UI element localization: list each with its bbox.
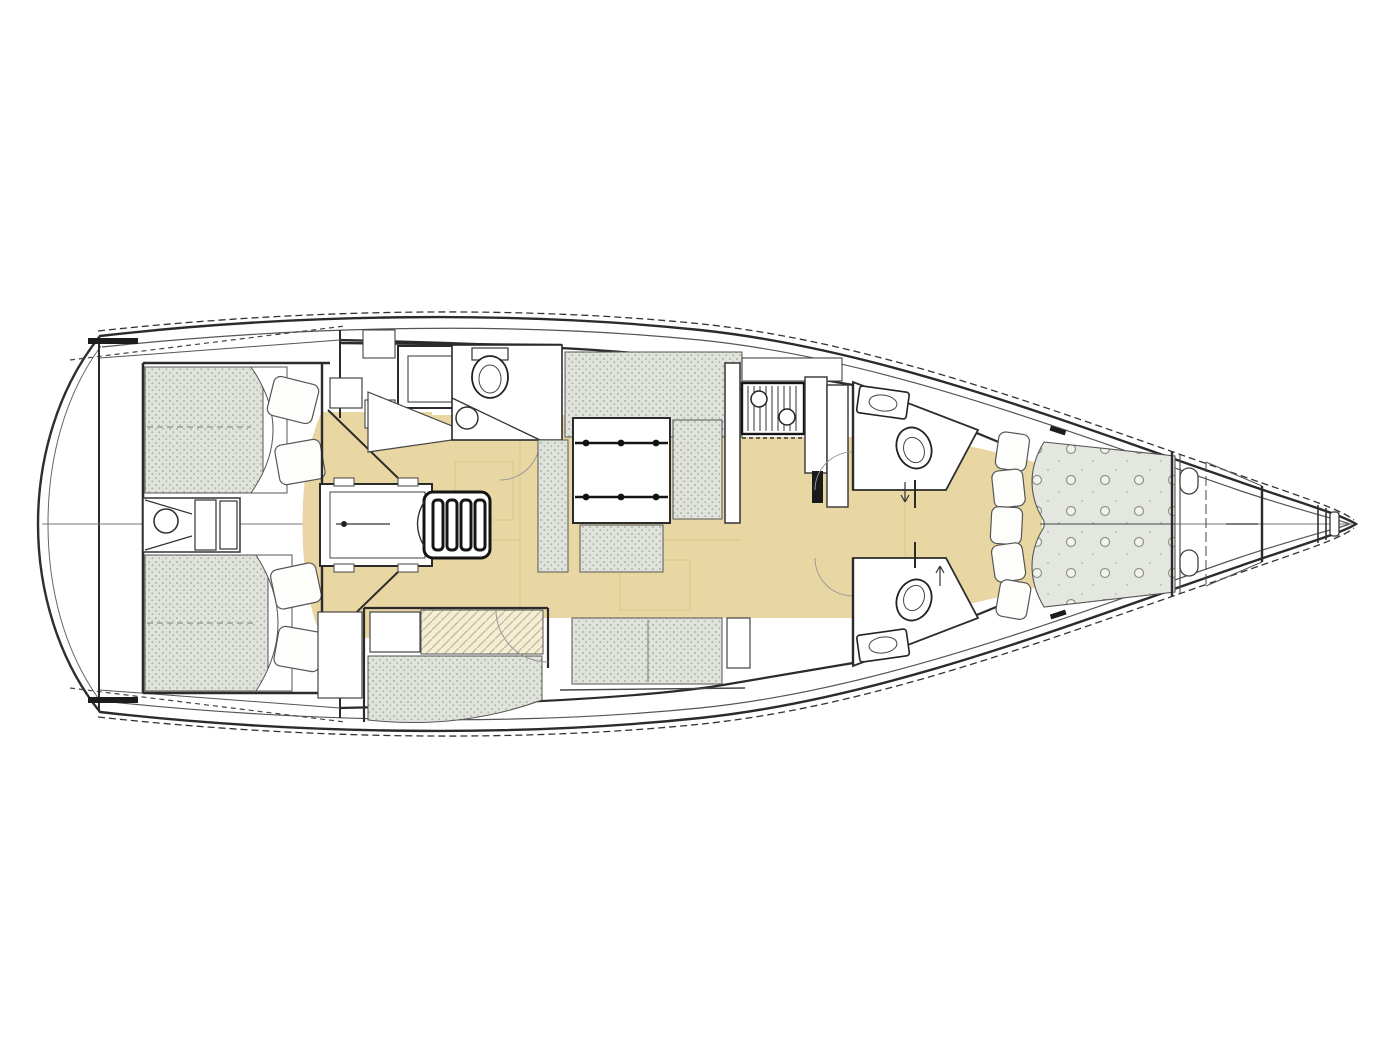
- port-cabin-seat: [370, 612, 420, 652]
- engine-mount-2: [398, 478, 418, 486]
- steering-gear-block-1: [195, 500, 216, 550]
- steering-compartment: [143, 498, 240, 552]
- engine-mount-3: [334, 564, 354, 572]
- settee-port: [572, 618, 722, 684]
- aft-stbd-wardrobe: [330, 378, 362, 408]
- engine-mount-1: [334, 478, 354, 486]
- galley-pillar: [725, 363, 740, 523]
- engine-compartment: [320, 484, 432, 566]
- v-berth-pillow-3: [990, 506, 1023, 545]
- bow-cleat-notch-bottom: [1180, 550, 1198, 576]
- steering-gear-block-2: [220, 501, 237, 549]
- aft-stbd-pillow-2: [274, 438, 326, 485]
- table-hinge-dot-1: [583, 440, 590, 447]
- saloon-ottoman: [580, 525, 663, 572]
- stern-traveler-bottom: [88, 697, 138, 703]
- table-hinge-dot-3: [653, 440, 660, 447]
- table-hinge-dot-4: [583, 494, 590, 501]
- saloon-port-locker: [727, 618, 750, 668]
- galley-counter-1: [805, 377, 827, 473]
- bow-cleat-notch-top: [1180, 468, 1198, 494]
- v-berth-pillow-4: [991, 542, 1027, 583]
- aft-port-pillow-2: [273, 625, 325, 672]
- galley-burner-1: [751, 391, 767, 407]
- companionway-step-1: [433, 500, 443, 550]
- stern-traveler-top: [88, 338, 138, 344]
- settee-stbd-right-column: [673, 420, 722, 519]
- galley-counter-2: [827, 385, 848, 507]
- bow-roller: [1330, 512, 1339, 536]
- saloon-table: [573, 418, 670, 523]
- floor-plan-canvas: [0, 0, 1389, 1041]
- aft-port-pillow-1: [269, 562, 322, 611]
- floor-plan-page: [0, 0, 1389, 1041]
- aft-head-toilet: [472, 356, 508, 398]
- galley-stove: [742, 383, 804, 434]
- table-hinge-dot-5: [618, 494, 625, 501]
- companionway-step-4: [475, 500, 485, 550]
- table-hinge-dot-2: [618, 440, 625, 447]
- v-berth-pillow-5: [995, 579, 1032, 621]
- rudder-stock: [154, 509, 178, 533]
- port-utility-locker: [318, 612, 362, 698]
- table-hinge-dot-6: [653, 494, 660, 501]
- engine-shaft-dot: [341, 521, 347, 527]
- companionway-step-2: [447, 500, 457, 550]
- galley-burner-2: [779, 409, 795, 425]
- companionway-step-3: [461, 500, 471, 550]
- engine-and-companionway: [320, 478, 490, 572]
- port-cabin-hatched-berth-head: [421, 610, 543, 654]
- aft-head-sink: [456, 407, 478, 429]
- engine-mount-4: [398, 564, 418, 572]
- nav-locker-1: [363, 330, 395, 358]
- aft-stbd-berth-mattress: [145, 367, 263, 493]
- settee-stbd-left-column: [538, 440, 568, 572]
- v-berth-pillow-1: [995, 431, 1031, 472]
- v-berth-pillow-2: [991, 468, 1026, 508]
